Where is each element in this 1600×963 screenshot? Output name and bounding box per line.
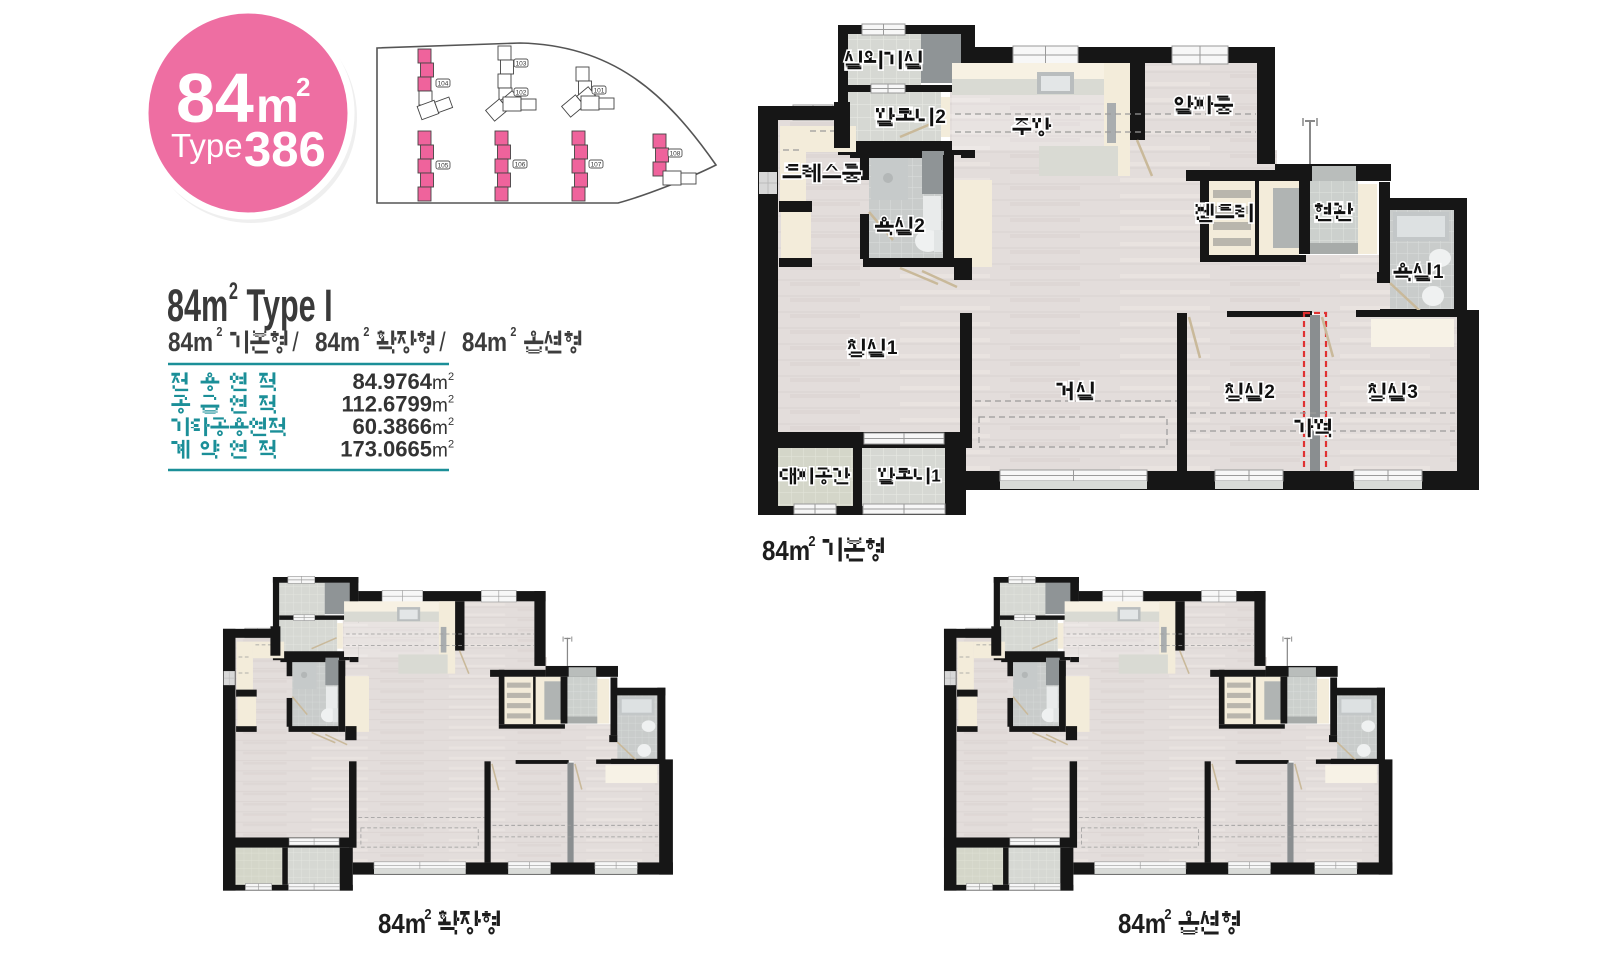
svg-text:1: 1 — [887, 338, 898, 359]
svg-text:Type I: Type I — [247, 281, 333, 331]
svg-text:/: / — [292, 327, 298, 357]
svg-text:101: 101 — [594, 88, 605, 95]
svg-text:2: 2 — [510, 324, 516, 339]
svg-text:m: m — [432, 396, 448, 417]
svg-text:386: 386 — [244, 123, 326, 177]
svg-text:103: 103 — [516, 61, 527, 68]
svg-text:2: 2 — [808, 532, 815, 549]
svg-text:2: 2 — [229, 278, 238, 305]
svg-text:104: 104 — [438, 81, 449, 88]
svg-text:102: 102 — [516, 90, 527, 97]
svg-text:1: 1 — [931, 467, 941, 486]
svg-text:2: 2 — [216, 324, 222, 339]
svg-text:2: 2 — [448, 439, 454, 451]
svg-text:2: 2 — [914, 216, 925, 237]
svg-text:m: m — [432, 418, 448, 439]
svg-text:84m: 84m — [1118, 907, 1166, 939]
svg-text:2: 2 — [363, 324, 369, 339]
svg-text:84m: 84m — [315, 327, 360, 357]
svg-text:84m: 84m — [168, 327, 213, 357]
svg-text:m: m — [432, 373, 448, 394]
svg-text:2: 2 — [448, 416, 454, 428]
svg-text:105: 105 — [438, 163, 449, 170]
svg-text:84m: 84m — [762, 534, 810, 566]
svg-text:112.6799: 112.6799 — [341, 392, 432, 417]
svg-text:60.3866: 60.3866 — [352, 414, 432, 439]
svg-text:2: 2 — [424, 905, 431, 922]
svg-text:106: 106 — [515, 162, 526, 169]
svg-text:/: / — [439, 327, 445, 357]
svg-text:84: 84 — [176, 59, 254, 137]
svg-text:m: m — [432, 441, 448, 462]
svg-text:3: 3 — [1407, 382, 1418, 403]
svg-text:Type: Type — [171, 127, 243, 164]
svg-text:84.9764: 84.9764 — [352, 369, 432, 394]
svg-text:2: 2 — [448, 394, 454, 406]
svg-text:1: 1 — [1433, 262, 1444, 283]
svg-text:2: 2 — [1264, 382, 1275, 403]
svg-text:84m: 84m — [462, 327, 507, 357]
svg-text:2: 2 — [296, 72, 310, 102]
svg-text:2: 2 — [935, 107, 946, 128]
svg-text:107: 107 — [591, 162, 602, 169]
svg-text:173.0665: 173.0665 — [340, 437, 432, 462]
svg-text:2: 2 — [1164, 905, 1171, 922]
svg-text:2: 2 — [448, 371, 454, 383]
svg-text:84m: 84m — [378, 907, 426, 939]
svg-text:108: 108 — [670, 151, 681, 158]
